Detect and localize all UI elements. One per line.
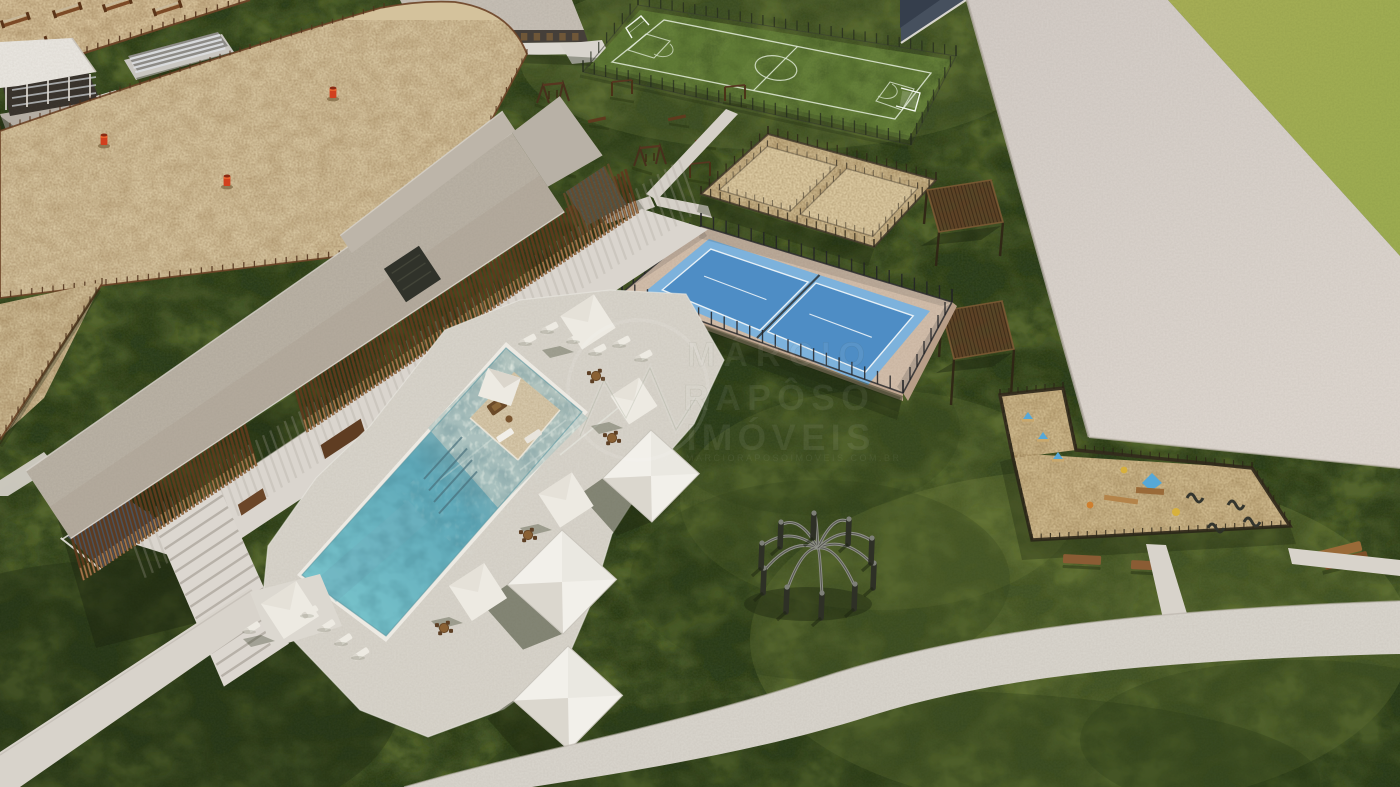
svg-text:WWW.MARCIORAPOSOIMOVEIS.COM.BR: WWW.MARCIORAPOSOIMOVEIS.COM.BR xyxy=(648,453,901,463)
svg-text:IMÓVEIS: IMÓVEIS xyxy=(686,416,875,458)
svg-text:RAPÔSO: RAPÔSO xyxy=(683,376,875,418)
svg-text:MÁRCIO: MÁRCIO xyxy=(687,336,873,374)
